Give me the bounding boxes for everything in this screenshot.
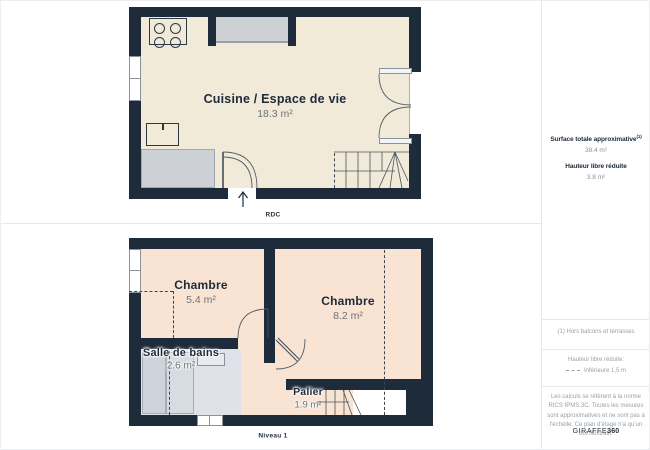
room-label: Chambre — [174, 278, 227, 292]
stair-void — [353, 390, 406, 415]
footnote: (1) Hors balcons et terrasses — [541, 329, 650, 335]
legend-row: Inférieure 1,5 m — [541, 368, 650, 374]
room-area: 8.2 m² — [333, 310, 363, 322]
legend-title: Hauteur libre réduite: — [541, 357, 650, 363]
entry-opening — [228, 188, 256, 199]
divider — [541, 349, 650, 350]
wall — [264, 238, 275, 363]
room-area: 1.9 m² — [295, 400, 322, 411]
surface-title: Surface totale approximative(1) — [541, 134, 650, 143]
wall — [129, 7, 421, 17]
wall — [129, 415, 433, 426]
wall — [406, 390, 433, 415]
divider — [1, 223, 541, 224]
room-area: 2.6 m² — [167, 361, 195, 372]
kitchen-counter — [216, 17, 288, 43]
reduced-height-line — [129, 291, 173, 292]
wall — [208, 17, 216, 46]
door-opening — [409, 72, 421, 134]
wall — [129, 7, 141, 199]
dashed-line-icon — [566, 370, 580, 371]
sink-icon — [146, 123, 179, 146]
legend: Hauteur libre réduite: Inférieure 1,5 m — [541, 357, 650, 374]
floor-label-rdc: RDC — [266, 212, 281, 219]
giraffe360-logo: GIRAFFE360 — [541, 428, 650, 435]
room-label: Cuisine / Espace de vie — [204, 92, 347, 106]
legend-label: Inférieure 1,5 m — [584, 368, 626, 374]
wall — [129, 188, 421, 199]
room-label: Salle de bains — [143, 347, 219, 359]
reduced-height-line — [334, 153, 335, 188]
summary-panel: Surface totale approximative(1) 38.4 m² … — [541, 134, 650, 181]
reduced-height-line — [173, 291, 174, 338]
wall — [129, 238, 433, 249]
window — [129, 56, 141, 101]
stove-icon — [149, 18, 187, 45]
counter — [141, 149, 215, 188]
window — [129, 249, 141, 293]
divider — [541, 1, 542, 450]
room-label: Chambre — [321, 294, 374, 308]
divider — [541, 386, 650, 387]
shower-icon — [142, 352, 166, 414]
room-area: 18.3 m² — [257, 108, 293, 120]
divider — [541, 319, 650, 320]
room-area: 5.4 m² — [186, 294, 216, 306]
floor-label-niveau1: Niveau 1 — [258, 433, 287, 440]
door-leaf — [379, 138, 412, 144]
clear-height-value: 3.8 m² — [541, 174, 650, 181]
window — [197, 415, 223, 426]
door-leaf — [379, 68, 412, 74]
wall — [288, 17, 296, 46]
floorplan-page: Cuisine / Espace de vie 18.3 m² RDC Cham… — [0, 0, 650, 450]
clear-height-title: Hauteur libre réduite — [541, 163, 650, 170]
surface-value: 38.4 m² — [541, 147, 650, 154]
room-label: Palier — [293, 386, 323, 398]
reduced-height-line — [384, 250, 385, 415]
